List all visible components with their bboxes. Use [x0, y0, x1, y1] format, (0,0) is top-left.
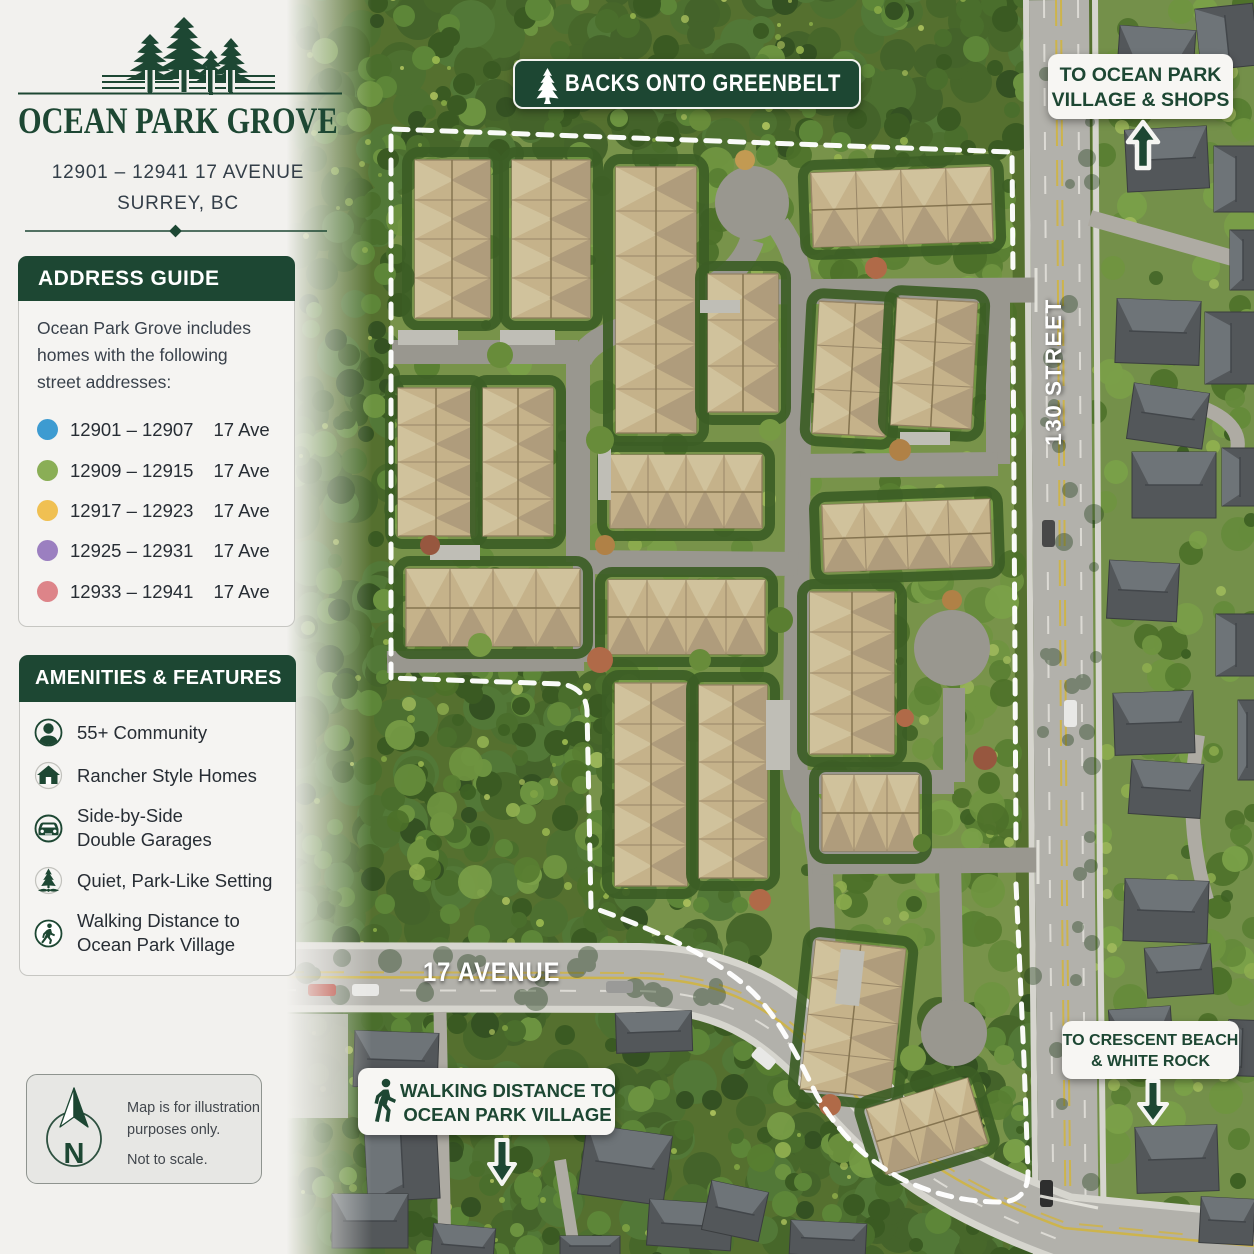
svg-text:N: N — [64, 1138, 85, 1170]
